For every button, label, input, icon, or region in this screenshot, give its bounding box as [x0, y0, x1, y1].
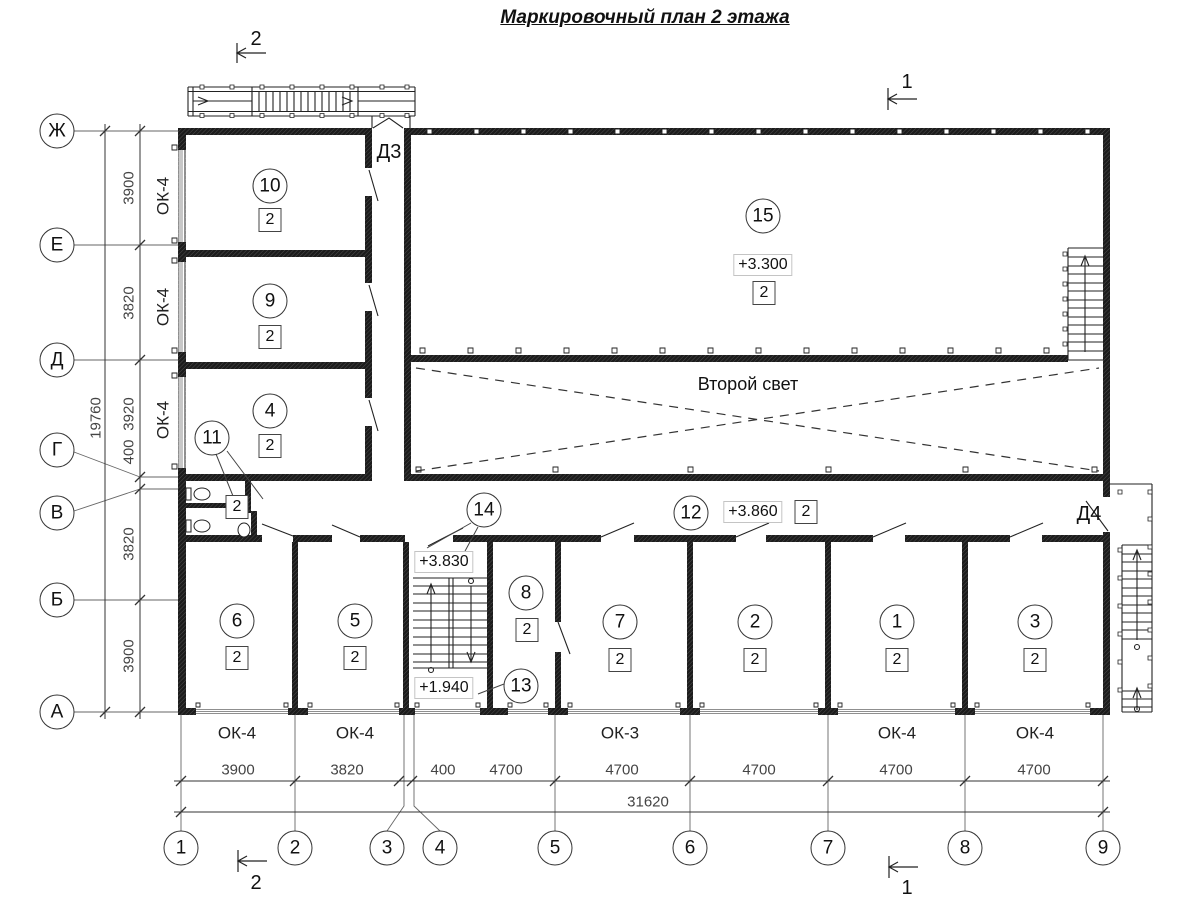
axis-row-g: Г: [40, 433, 75, 468]
room-1-category: 2: [886, 648, 909, 672]
room-11-number: 11: [195, 421, 230, 456]
axis-row-b: Б: [40, 583, 75, 618]
room-5-number: 5: [338, 604, 373, 639]
room-8-category: 2: [516, 618, 539, 642]
room-13-number: 13: [504, 669, 539, 704]
window-mark-left-2: ОК-4: [155, 288, 172, 326]
dim-left-5: 3820: [122, 527, 137, 560]
corridor-level: +3.860: [723, 501, 782, 523]
window-mark-left-3: ОК-4: [155, 401, 172, 439]
door-d4-label: Д4: [1077, 504, 1102, 524]
axis-col-4: 4: [423, 831, 458, 866]
axis-row-e: Е: [40, 228, 75, 263]
axis-row-d: Д: [40, 343, 75, 378]
section-marks: [237, 43, 918, 878]
room-1-number: 1: [880, 605, 915, 640]
room-14-number: 14: [467, 493, 502, 528]
main-staircase: [413, 578, 490, 673]
stair-mid-level: +1.940: [414, 677, 473, 699]
room-10-number: 10: [253, 169, 288, 204]
window-mark-bottom-3: ОК-3: [601, 725, 639, 742]
room-7-category: 2: [609, 648, 632, 672]
dim-bottom-total: 31620: [627, 795, 669, 810]
exterior-stair-top: [188, 85, 415, 128]
room-11-category: 2: [226, 495, 249, 519]
room-4-number: 4: [253, 394, 288, 429]
dim-left-2: 3820: [122, 286, 137, 319]
axis-col-2: 2: [278, 831, 313, 866]
room-2-number: 2: [738, 605, 773, 640]
axis-col-5: 5: [538, 831, 573, 866]
dim-left-1: 3900: [122, 171, 137, 204]
room-3-category: 2: [1024, 648, 1047, 672]
dim-left-3: 3920: [122, 397, 137, 430]
room-12-category: 2: [795, 500, 818, 524]
room-4-category: 2: [259, 434, 282, 458]
axis-col-8: 8: [948, 831, 983, 866]
axis-row-zh: Ж: [40, 114, 75, 149]
room-7-number: 7: [603, 605, 638, 640]
dim-bottom-7: 4700: [879, 763, 912, 778]
window-mark-bottom-4: ОК-4: [878, 725, 916, 742]
dim-left-6: 3900: [122, 639, 137, 672]
dim-bottom-2: 3820: [330, 763, 363, 778]
dim-bottom-5: 4700: [605, 763, 638, 778]
axis-col-6: 6: [673, 831, 708, 866]
door-d3-label: Д3: [377, 142, 402, 162]
hall-stair: [1063, 248, 1103, 360]
window-mark-bottom-5: ОК-4: [1016, 725, 1054, 742]
dim-bottom-6: 4700: [742, 763, 775, 778]
section-1-top-label: 1: [901, 72, 912, 92]
dim-bottom-1: 3900: [221, 763, 254, 778]
axis-row-a: А: [40, 695, 75, 730]
walls: [178, 128, 1110, 715]
drawing-title: Маркировочный план 2 этажа: [500, 7, 789, 29]
dim-bottom-4: 4700: [489, 763, 522, 778]
door-swings: [262, 118, 1108, 654]
axis-col-1: 1: [164, 831, 199, 866]
stair-upper-level: +3.830: [414, 551, 473, 573]
axis-col-9: 9: [1086, 831, 1121, 866]
section-1-bottom-label: 1: [901, 878, 912, 898]
room-10-category: 2: [259, 208, 282, 232]
room-9-number: 9: [253, 284, 288, 319]
dim-left-4: 400: [122, 439, 137, 464]
window-mark-bottom-2: ОК-4: [336, 725, 374, 742]
dim-bottom-3: 400: [430, 763, 455, 778]
room-3-number: 3: [1018, 605, 1053, 640]
axis-col-7: 7: [811, 831, 846, 866]
dim-left-total: 19760: [89, 397, 104, 439]
room-6-category: 2: [226, 646, 249, 670]
axis-col-3: 3: [370, 831, 405, 866]
room-5-category: 2: [344, 646, 367, 670]
window-mark-bottom-1: ОК-4: [218, 725, 256, 742]
room-15-level: +3.300: [733, 254, 792, 276]
window-mark-left-1: ОК-4: [155, 177, 172, 215]
room-8-number: 8: [509, 576, 544, 611]
axis-row-v: В: [40, 496, 75, 531]
room-15-number: 15: [746, 199, 781, 234]
section-2-bottom-label: 2: [250, 873, 261, 893]
room-15-category: 2: [753, 281, 776, 305]
void-label: Второй свет: [694, 375, 803, 393]
dim-bottom-8: 4700: [1017, 763, 1050, 778]
room-6-number: 6: [220, 604, 255, 639]
floor-plan: Маркировочный план 2 этажа Ж Е Д Г В Б А…: [0, 0, 1200, 900]
room-2-category: 2: [744, 648, 767, 672]
room-12-number: 12: [674, 496, 709, 531]
exterior-stair-right: [1110, 484, 1152, 712]
room-9-category: 2: [259, 325, 282, 349]
section-2-top-label: 2: [250, 29, 261, 49]
